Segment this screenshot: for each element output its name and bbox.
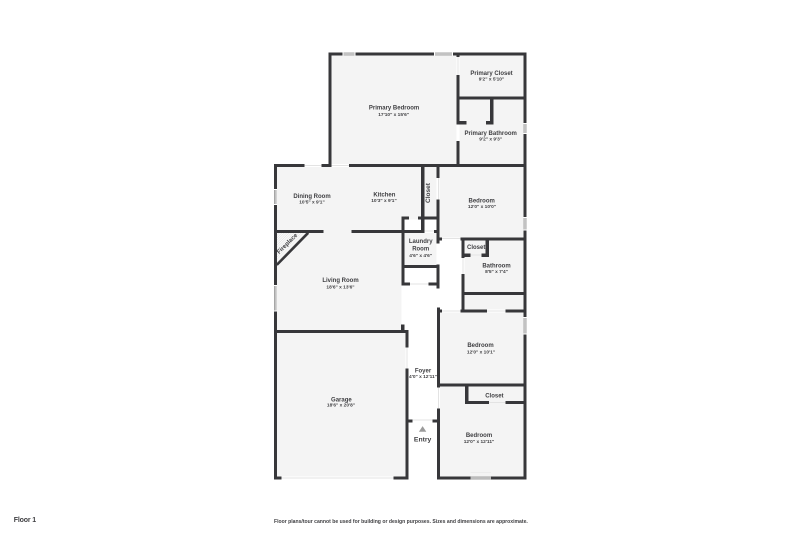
svg-text:Foyer: Foyer (415, 369, 432, 375)
svg-text:Floor plans/tour cannot be use: Floor plans/tour cannot be used for buil… (274, 519, 528, 525)
svg-text:Closet: Closet (485, 394, 503, 400)
svg-text:Closet: Closet (467, 245, 485, 251)
svg-text:17'10" x 15'6": 17'10" x 15'6" (378, 112, 409, 118)
svg-text:Bathroom: Bathroom (482, 264, 510, 270)
svg-text:8'5" x 7'4": 8'5" x 7'4" (485, 269, 508, 275)
svg-text:12'0" x 10'0": 12'0" x 10'0" (468, 204, 496, 210)
svg-text:12'0" x 10'1": 12'0" x 10'1" (467, 350, 495, 356)
svg-text:Primary Bathroom: Primary Bathroom (465, 131, 517, 137)
svg-text:10'3" x 9'1": 10'3" x 9'1" (371, 198, 397, 204)
svg-text:Closet: Closet (425, 182, 432, 203)
svg-text:4'6" x 4'6": 4'6" x 4'6" (409, 253, 432, 259)
svg-text:Garage: Garage (331, 397, 352, 403)
svg-text:Laundry: Laundry (409, 239, 433, 245)
svg-text:18'6" x 20'8": 18'6" x 20'8" (327, 403, 355, 409)
svg-text:10'5" x 9'1": 10'5" x 9'1" (299, 200, 325, 206)
svg-text:Entry: Entry (414, 437, 432, 444)
svg-text:Floor 1: Floor 1 (14, 517, 37, 524)
svg-text:Kitchen: Kitchen (373, 193, 395, 199)
svg-text:12'0" x 12'11": 12'0" x 12'11" (464, 439, 495, 445)
svg-text:Living Room: Living Room (322, 278, 358, 284)
svg-text:Bedroom: Bedroom (469, 198, 495, 204)
svg-text:Bedroom: Bedroom (466, 433, 492, 439)
svg-text:Primary Closet: Primary Closet (470, 71, 512, 77)
svg-text:4'0" x 12'11": 4'0" x 12'11" (409, 374, 437, 380)
svg-text:9'2" x 9'3": 9'2" x 9'3" (479, 136, 502, 142)
svg-text:Room: Room (412, 246, 429, 252)
svg-text:Bedroom: Bedroom (467, 343, 493, 349)
svg-text:Dining Room: Dining Room (293, 194, 330, 200)
svg-text:18'6" x 13'6": 18'6" x 13'6" (326, 285, 354, 291)
svg-text:9'2" x 5'10": 9'2" x 5'10" (479, 77, 505, 83)
svg-text:Primary Bedroom: Primary Bedroom (369, 106, 419, 112)
